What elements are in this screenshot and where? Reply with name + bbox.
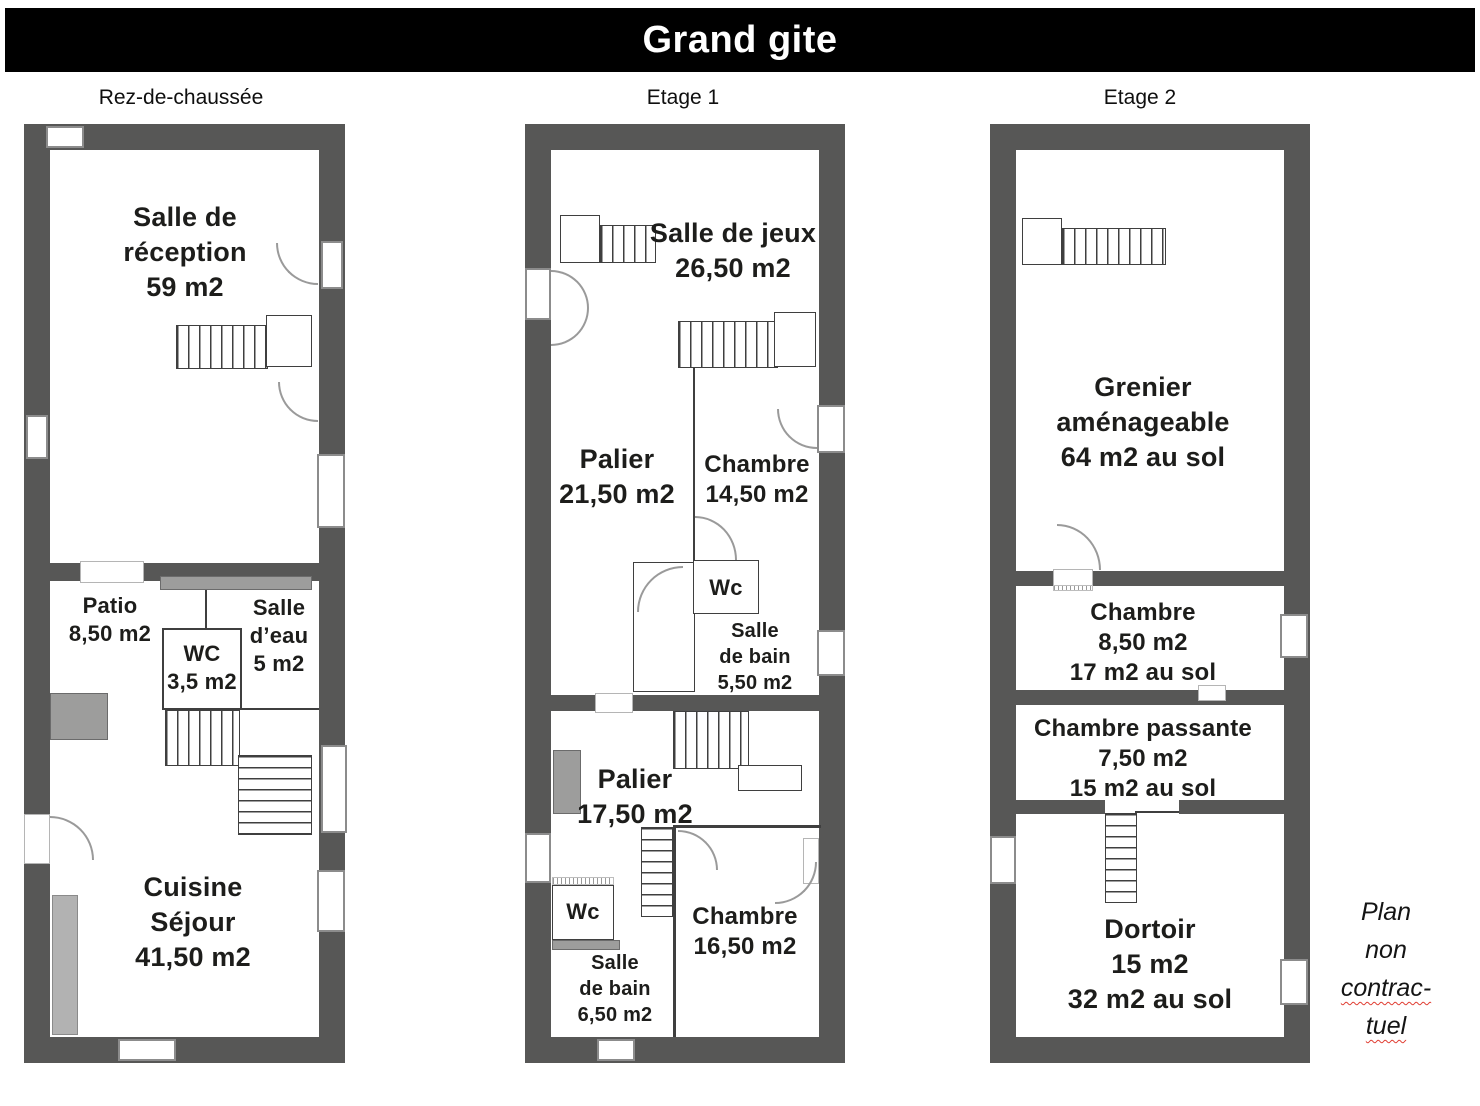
window <box>321 241 343 289</box>
window <box>1280 959 1308 1005</box>
room-label-salle-de-bain-1: Salle de bain 5,50 m2 <box>697 618 813 696</box>
stairs-landing <box>266 315 312 367</box>
patio-bench <box>50 693 108 740</box>
window <box>118 1039 176 1061</box>
door-arc <box>278 382 318 422</box>
window <box>1280 614 1308 658</box>
room-label-salle-de-jeux: Salle de jeux 26,50 m2 <box>633 216 833 286</box>
door-arc <box>551 270 589 308</box>
counter-bar <box>552 940 620 950</box>
wall-bottom <box>525 1037 845 1063</box>
door-opening <box>24 814 50 864</box>
stairs-landing <box>738 765 802 791</box>
room-label-wc-2: Wc <box>552 898 614 926</box>
partition-wall <box>205 590 207 628</box>
counter-bar <box>160 576 312 590</box>
door-opening <box>80 561 144 583</box>
stairs-run <box>238 755 312 835</box>
door-arc <box>678 830 718 870</box>
floorplan-etage-2: Grenier aménageable 64 m2 au sol Chambre… <box>990 124 1310 1063</box>
window <box>597 1039 635 1061</box>
stairs-run <box>673 711 749 769</box>
door-threshold <box>1053 585 1093 591</box>
floor-label-rdc: Rez-de-chaussée <box>61 86 301 110</box>
window <box>525 833 551 883</box>
door-threshold <box>552 877 614 885</box>
room-label-palier-bas: Palier 17,50 m2 <box>555 762 715 832</box>
wall-top <box>990 124 1310 150</box>
wall-bottom <box>990 1037 1310 1063</box>
floor-label-etage1: Etage 1 <box>563 86 803 110</box>
window <box>46 126 84 148</box>
door-arc <box>777 409 817 449</box>
wall-top <box>525 124 845 150</box>
partition-wall <box>240 708 319 710</box>
stairs-run <box>1062 228 1166 265</box>
room-label-chambre-2: Chambre 16,50 m2 <box>683 902 807 962</box>
door-opening <box>595 693 633 713</box>
door-arc <box>695 516 737 560</box>
disclaimer-note: Plan non contrac- tuel <box>1322 893 1450 1045</box>
stairs-run <box>641 827 673 917</box>
room-label-grenier: Grenier aménageable 64 m2 au sol <box>1023 370 1263 475</box>
door-arc <box>50 816 94 860</box>
room-label-reception: Salle de réception 59 m2 <box>50 200 320 305</box>
window <box>525 268 551 320</box>
door-arc <box>1057 524 1101 570</box>
interior-wall <box>551 695 819 711</box>
stairs-run <box>678 321 778 368</box>
stairs-run <box>165 710 240 766</box>
wall-left <box>525 124 551 1063</box>
window <box>26 415 48 459</box>
room-label-wc-1: Wc <box>693 574 759 602</box>
room-label-salle-de-bain-2: Salle de bain 6,50 m2 <box>553 950 677 1028</box>
door-arc <box>551 308 589 346</box>
stairs-landing <box>560 215 600 263</box>
door-arc <box>775 862 817 904</box>
room-label-cuisine: Cuisine Séjour 41,50 m2 <box>58 870 328 975</box>
room-label-salle-eau: Salle d’eau 5 m2 <box>240 594 318 678</box>
room-label-chambre-1: Chambre 14,50 m2 <box>697 450 817 510</box>
room-label-patio: Patio 8,50 m2 <box>50 592 170 648</box>
wall-left <box>990 124 1016 1063</box>
stairs-landing <box>1022 218 1062 265</box>
interior-wall <box>1016 690 1284 705</box>
window <box>321 745 347 833</box>
room-label-palier-haut: Palier 21,50 m2 <box>547 442 687 512</box>
title-bar: Grand gite <box>5 8 1475 72</box>
wall-bottom <box>24 1037 345 1063</box>
room-label-chambre: Chambre 8,50 m2 17 m2 au sol <box>1023 598 1263 688</box>
window <box>990 836 1016 884</box>
floorplan-rez-de-chaussee: Salle de réception 59 m2 Patio 8,50 m2 W… <box>24 124 345 1063</box>
wall-right <box>1284 124 1310 1063</box>
window <box>817 405 845 453</box>
partition-wall <box>1135 811 1179 813</box>
room-label-wc: WC 3,5 m2 <box>162 640 242 696</box>
window <box>817 630 845 676</box>
stairs-run <box>1105 813 1137 903</box>
floorplan-etage-1: Salle de jeux 26,50 m2 Palier 21,50 m2 C… <box>525 124 845 1063</box>
stairs-run <box>176 325 268 369</box>
floor-label-etage2: Etage 2 <box>1020 86 1260 110</box>
wall-left <box>24 124 50 1063</box>
window <box>317 454 345 528</box>
stairs-landing <box>774 312 816 367</box>
room-label-chambre-passante: Chambre passante 7,50 m2 15 m2 au sol <box>1010 714 1276 804</box>
room-label-dortoir: Dortoir 15 m2 32 m2 au sol <box>1030 912 1270 1017</box>
page-title: Grand gite <box>642 19 837 62</box>
